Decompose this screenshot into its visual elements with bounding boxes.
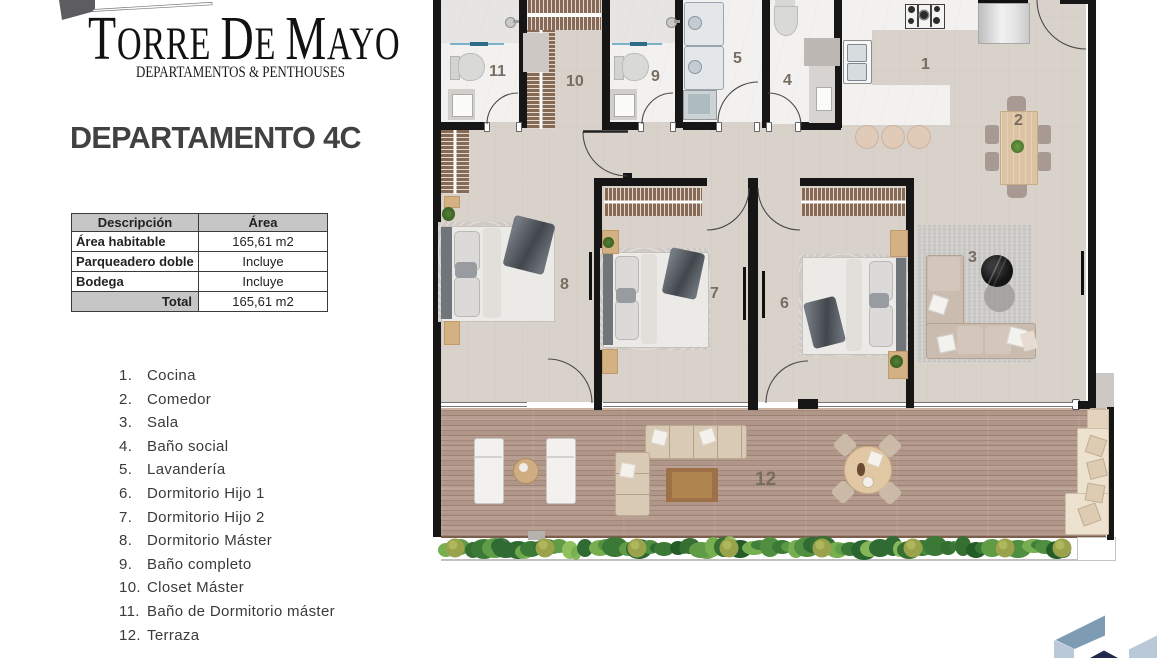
svg-text:DEPARTAMENTOS & PENTHOUSES: DEPARTAMENTOS & PENTHOUSES bbox=[136, 64, 345, 81]
svg-text:TORRE DE MAYO: TORRE DE MAYO bbox=[88, 3, 400, 73]
